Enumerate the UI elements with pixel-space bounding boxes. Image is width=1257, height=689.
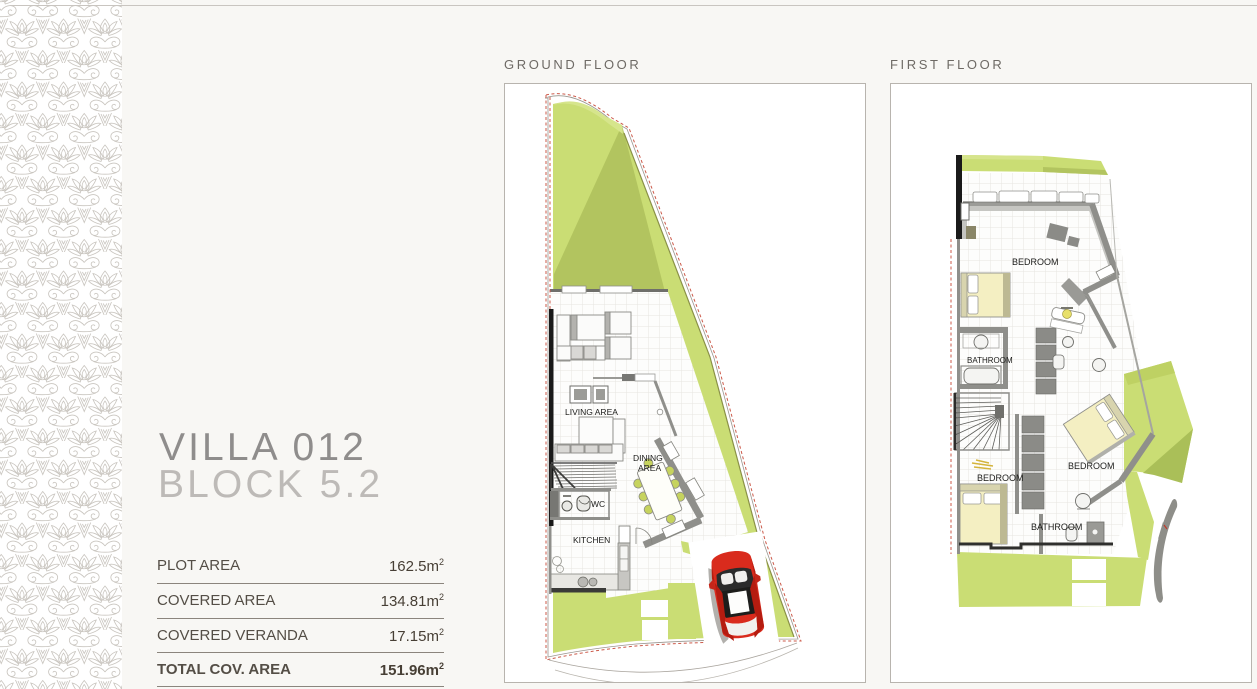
svg-text:KITCHEN: KITCHEN — [573, 535, 610, 545]
svg-text:BATHROOM: BATHROOM — [967, 356, 1013, 365]
svg-text:WC: WC — [591, 499, 605, 509]
svg-text:BEDROOM: BEDROOM — [977, 473, 1024, 483]
svg-text:AREA: AREA — [638, 463, 661, 473]
svg-text:DINING: DINING — [633, 453, 663, 463]
svg-text:BEDROOM: BEDROOM — [1068, 461, 1115, 471]
svg-text:BATHROOM: BATHROOM — [1031, 522, 1082, 532]
svg-text:LIVING AREA: LIVING AREA — [565, 407, 618, 417]
svg-text:BEDROOM: BEDROOM — [1012, 257, 1059, 267]
